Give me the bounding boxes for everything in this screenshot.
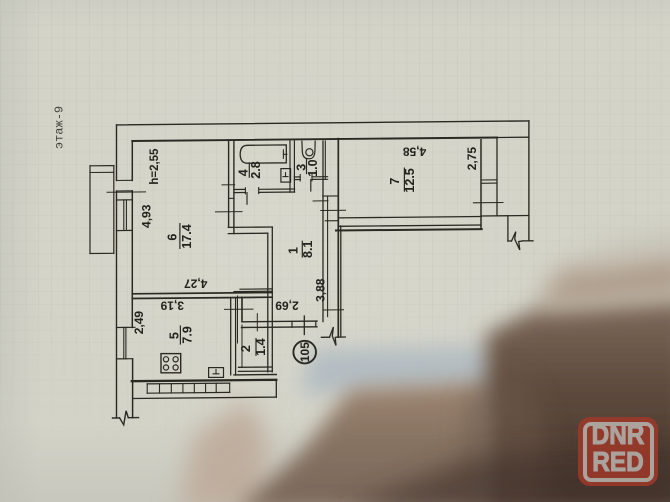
svg-text:4,93: 4,93	[140, 204, 154, 228]
svg-text:2,75: 2,75	[465, 147, 479, 171]
svg-text:17.4: 17.4	[180, 224, 194, 248]
svg-text:2,69: 2,69	[275, 298, 299, 312]
svg-text:2,49: 2,49	[132, 311, 146, 335]
svg-text:8.1: 8.1	[301, 241, 315, 258]
svg-text:5: 5	[168, 332, 182, 339]
svg-text:1: 1	[286, 247, 300, 254]
svg-text:7.9: 7.9	[181, 326, 195, 343]
svg-text:3,19: 3,19	[160, 298, 184, 312]
svg-text:2: 2	[239, 345, 253, 352]
svg-text:12.5: 12.5	[403, 168, 417, 192]
svg-text:7: 7	[388, 178, 402, 185]
svg-text:этаж-9: этаж-9	[53, 106, 67, 149]
svg-text:h=2,55: h=2,55	[149, 148, 161, 185]
svg-text:105: 105	[298, 342, 312, 362]
svg-text:3,88: 3,88	[313, 278, 327, 302]
svg-text:1.0: 1.0	[306, 159, 320, 176]
svg-text:1.4: 1.4	[254, 338, 268, 355]
svg-text:6: 6	[166, 234, 180, 241]
svg-text:4,58: 4,58	[403, 145, 427, 159]
svg-text:4,27: 4,27	[184, 277, 208, 291]
svg-text:2.8: 2.8	[249, 161, 263, 178]
